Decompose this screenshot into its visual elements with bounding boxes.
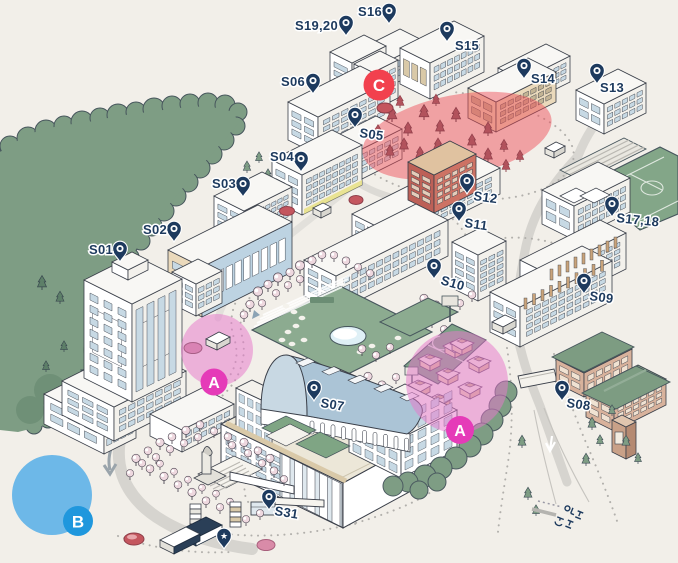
svg-text:C: C: [373, 76, 385, 95]
svg-text:S19,20: S19,20: [295, 18, 338, 33]
svg-text:S15: S15: [455, 38, 479, 53]
svg-text:S06: S06: [281, 74, 305, 89]
svg-text:S02: S02: [143, 222, 167, 237]
svg-text:B: B: [72, 513, 84, 532]
svg-text:S13: S13: [600, 80, 624, 95]
svg-text:★: ★: [220, 531, 228, 541]
svg-text:S14: S14: [531, 71, 556, 86]
svg-text:S03: S03: [212, 176, 236, 191]
svg-text:A: A: [454, 423, 466, 440]
svg-text:S16: S16: [358, 4, 382, 19]
svg-text:S01: S01: [89, 242, 113, 257]
svg-text:A: A: [208, 375, 220, 392]
svg-text:S04: S04: [270, 149, 295, 164]
